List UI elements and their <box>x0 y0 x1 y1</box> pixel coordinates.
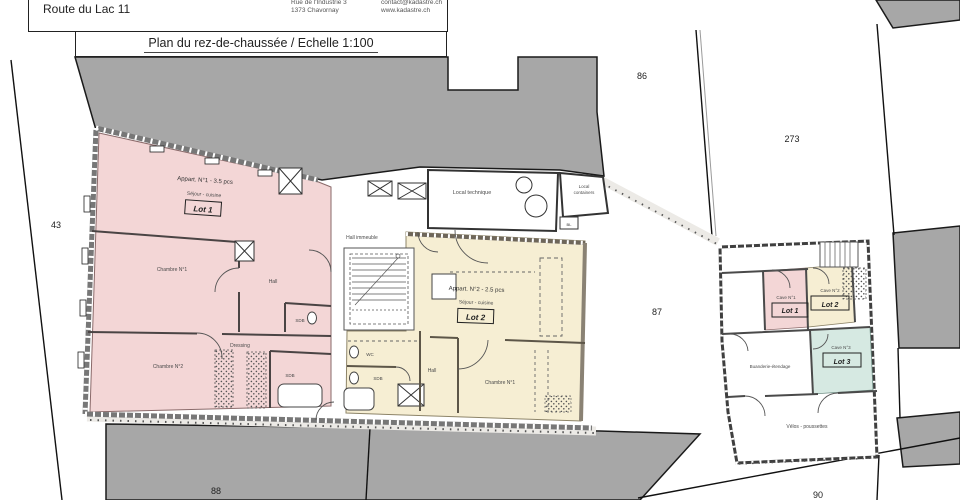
company-address2: 1373 Chavornay <box>291 7 347 16</box>
local-technique-label: Local technique <box>453 190 492 196</box>
toilet-wc-apt2 <box>350 346 359 358</box>
company-email: contact@kadastre.ch <box>381 0 442 7</box>
company-address1: Rue de l'Industrie 3 <box>291 0 347 7</box>
room-label-sdb-apt2: SDB <box>373 376 382 381</box>
room-label-hall-apt2: Hall <box>428 368 437 374</box>
toilet-sdb-apt2 <box>350 372 359 384</box>
bathtub-apt2 <box>344 388 374 410</box>
driveway-strip <box>601 180 718 242</box>
plan-page: 43 86 273 87 88 90 <box>0 0 960 500</box>
buanderie-label: Buanderie-étendage <box>750 364 791 369</box>
local-containers-label-2: containers <box>574 190 596 195</box>
dotted-block-apt2 <box>545 396 571 412</box>
lot1-badge: Lot 1 <box>193 204 213 214</box>
tank-circle-large <box>525 195 547 217</box>
cave1-label: Cave N°1 <box>776 295 796 300</box>
room-label-chambre1-apt1: Chambre N°1 <box>157 267 188 273</box>
tank-circle-small <box>516 177 532 193</box>
velos-label: Vélos - poussettes <box>786 424 828 430</box>
plan-title: Plan du rez-de-chaussée / Echelle 1:100 <box>144 36 377 53</box>
cave2-label: Cave N°2 <box>820 288 840 293</box>
boundary-line-86-273-b <box>700 30 716 236</box>
plan-canvas: 43 86 273 87 88 90 <box>0 0 960 500</box>
parcel-number-273: 273 <box>784 134 799 144</box>
room-label-dressing: Dressing <box>230 343 250 349</box>
annex-dotted-area <box>843 268 866 299</box>
apartment2-type-label: Séjour - cuisine <box>459 299 494 306</box>
company-website: www.kadastre.ch <box>381 7 442 16</box>
header-company-block: KADASTRE.CH Rue de l'Industrie 3 1373 Ch… <box>291 0 347 16</box>
parcel-number-90: 90 <box>813 490 823 500</box>
header-contact-block: 024 510 38 00 contact@kadastre.ch www.ka… <box>381 0 442 16</box>
header-parcel-line2: Route du Lac 11 <box>43 2 130 17</box>
header-parcel-block: Parcelle 87 Route du Lac 11 <box>43 0 130 17</box>
cave3-label: Cave N°3 <box>831 345 851 350</box>
room-label-chambre1-apt2: Chambre N°1 <box>485 380 516 386</box>
boundary-line-east-mid <box>898 348 900 418</box>
title-box: Plan du rez-de-chaussée / Echelle 1:100 <box>75 31 447 57</box>
wardrobe-left <box>215 350 233 407</box>
bl-label: BL <box>567 222 573 227</box>
cave1-lot-badge: Lot 1 <box>782 308 799 315</box>
stairs-annex <box>820 242 858 267</box>
toilet-apt1 <box>308 312 317 324</box>
cave3-lot-badge: Lot 3 <box>834 359 851 366</box>
boundary-line-west <box>11 60 62 500</box>
local-containers-label-1: Local <box>579 184 590 189</box>
stairs-main <box>344 248 414 330</box>
room-label-sdb-b: SDB <box>285 373 294 378</box>
parcel-gray-topright <box>876 0 960 28</box>
parcel-number-87: 87 <box>652 307 662 317</box>
parcel-gray-bottom <box>106 424 700 500</box>
wardrobe-right <box>247 352 266 408</box>
boundary-line-90-vertical <box>877 455 879 500</box>
room-label-sdb-a: SDB <box>295 318 304 323</box>
annex-building: Cave N°1 Lot 1 Cave N°2 Lot 2 Cave N°3 L… <box>720 241 877 464</box>
parcel-number-88: 88 <box>211 486 221 496</box>
room-label-hall-apt1: Hall <box>269 279 278 285</box>
boundary-line-east-upper <box>877 24 894 235</box>
parcel-number-86: 86 <box>637 71 647 81</box>
room-label-wc-apt2: WC <box>366 352 374 357</box>
local-containers-room <box>560 173 608 217</box>
cave2-lot-badge: Lot 2 <box>822 302 839 309</box>
main-building: BL Appart. N°1 - 3.5 pcs Séjour - cuisin… <box>78 128 718 433</box>
hall-immeuble-label: Hall immeuble <box>346 235 378 241</box>
boundary-line-86-273-a <box>696 30 712 236</box>
parcel-number-43: 43 <box>51 220 61 230</box>
parcel-gray-right-upper <box>893 226 960 348</box>
bathtub-apt1 <box>278 384 322 407</box>
lot2-badge: Lot 2 <box>466 313 486 323</box>
room-label-chambre2-apt1: Chambre N°2 <box>153 364 184 370</box>
header-box: Parcelle 87 Route du Lac 11 KADASTRE.CH … <box>28 0 448 32</box>
